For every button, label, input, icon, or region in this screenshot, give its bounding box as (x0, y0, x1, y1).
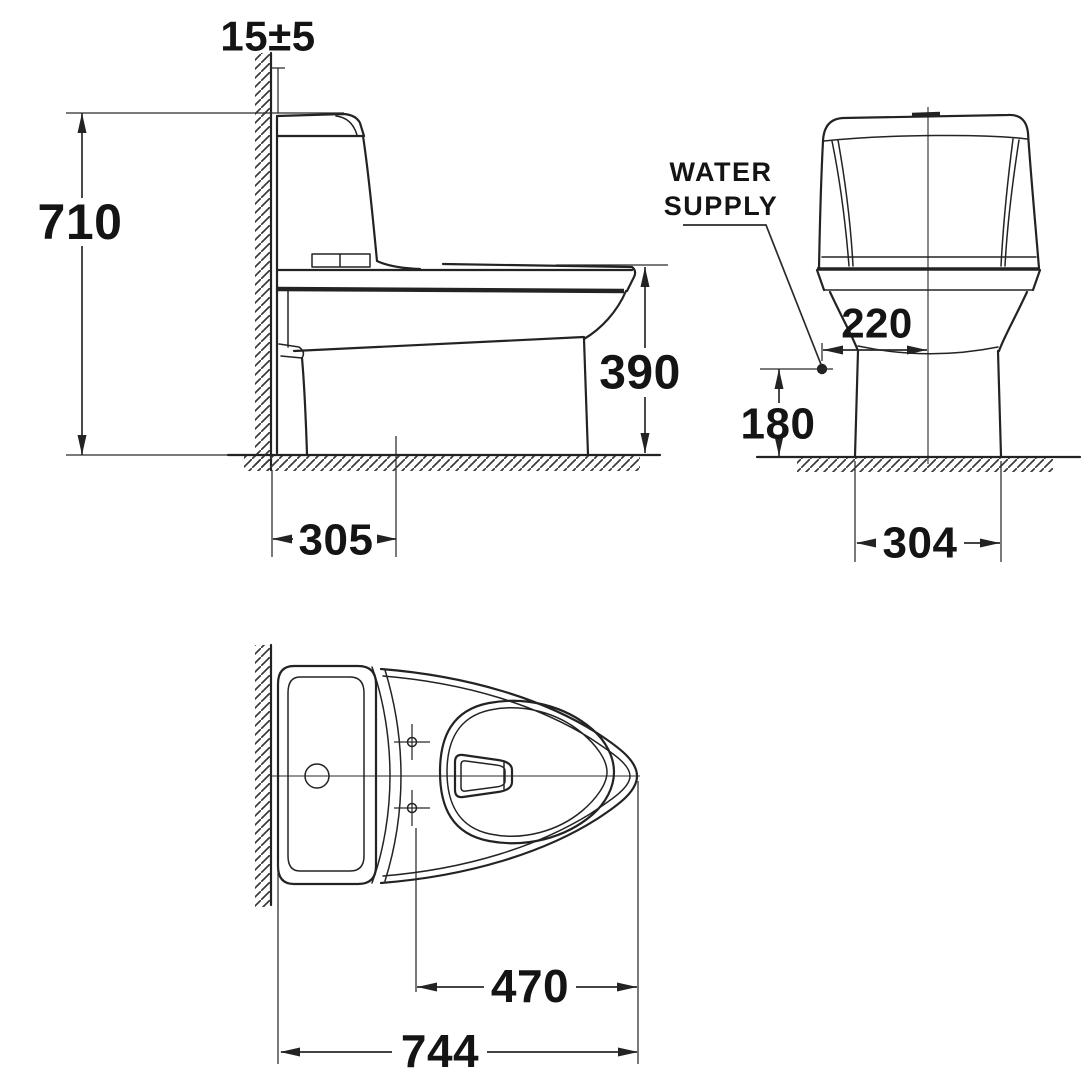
rim-bottom-thick-line (277, 289, 624, 291)
dimension-bolts-to-front: 470 (416, 828, 637, 1012)
toilet-top-profile (278, 666, 637, 884)
supply-height-label: 180 (741, 400, 816, 449)
front-view: WATER SUPPLY 220 180 304 (664, 107, 1080, 568)
side-view: 15±5 710 390 305 (38, 13, 681, 565)
top-details (288, 667, 630, 883)
technical-drawing-toilet-dimensions: 15±5 710 390 305 (0, 0, 1090, 1090)
lid-top-tab (912, 114, 940, 115)
height-extension-lines (66, 113, 344, 455)
side-details (279, 116, 370, 358)
base-width-label: 304 (883, 519, 958, 568)
wall-gap-ticks (271, 68, 285, 113)
top-outline (278, 666, 637, 884)
supply-to-center-label: 220 (841, 300, 913, 347)
water-supply-leader-line (683, 225, 822, 367)
water-supply-label-line2: SUPPLY (664, 191, 779, 221)
top-wall-hatch (255, 645, 271, 907)
dimension-overall-height: 710 (38, 113, 344, 455)
outlet-from-wall-label: 305 (299, 516, 374, 565)
top-view: 470 744 (255, 645, 640, 1077)
floor-hatch (244, 456, 640, 471)
overall-height-label: 710 (38, 194, 123, 250)
water-supply-annotation: WATER SUPPLY (664, 157, 827, 374)
side-outline (277, 114, 635, 455)
front-floor-hatch (797, 458, 1053, 472)
bolts-to-front-label: 470 (491, 960, 569, 1012)
depth-extension-lines (278, 781, 638, 1064)
rim-height-label: 390 (599, 347, 681, 400)
water-supply-label-line1: WATER (670, 157, 773, 187)
wall-gap-label: 15±5 (220, 13, 315, 60)
wall-hatch (255, 53, 271, 470)
dimension-rim-height: 390 (556, 265, 681, 453)
overall-depth-label: 744 (401, 1025, 479, 1077)
dimension-supply-height: 180 (741, 369, 833, 456)
dimension-base-width: 304 (855, 461, 1001, 568)
toilet-side-profile (277, 114, 635, 455)
drawing-svg: 15±5 710 390 305 (0, 0, 1090, 1090)
